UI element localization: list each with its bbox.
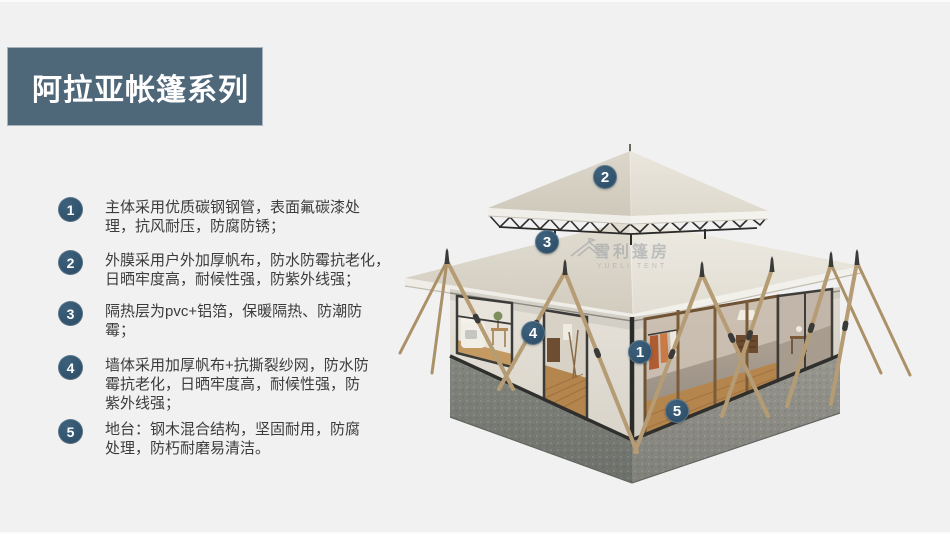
- feature-text: 外膜采用户外加厚帆布，防水防霉抗老化， 日晒牢度高，耐候性强，防紫外线强；: [105, 251, 395, 289]
- tent-illustration: 雪利篷房 YUELI TENT 1 2 3 4 5: [395, 140, 950, 534]
- feature-item-2: 2 外膜采用户外加厚帆布，防水防霉抗老化， 日晒牢度高，耐候性强，防紫外线强；: [58, 250, 395, 289]
- tent-marker-3: 3: [535, 230, 559, 254]
- feature-text: 墙体采用加厚帆布+抗撕裂纱网，防水防 霉抗老化，日晒牢度高，耐候性强，防 紫外线…: [105, 356, 395, 413]
- feature-item-5: 5 地台：钢木混合结构，坚固耐用，防腐 处理，防朽耐磨易清洁。: [58, 419, 395, 458]
- tent-render: [395, 140, 950, 534]
- feature-item-1: 1 主体采用优质碳钢钢管，表面氟碳漆处 理，抗风耐压，防腐防锈；: [58, 197, 395, 236]
- feature-number-badge: 2: [58, 250, 83, 275]
- watermark-tent-icon: [567, 238, 611, 258]
- tent-marker-5: 5: [665, 399, 689, 423]
- slide-top-edge: [0, 0, 950, 2]
- page-title: 阿拉亚帐篷系列: [8, 65, 249, 109]
- feature-text: 地台：钢木混合结构，坚固耐用，防腐 处理，防朽耐磨易清洁。: [105, 420, 395, 458]
- feature-text: 主体采用优质碳钢钢管，表面氟碳漆处 理，抗风耐压，防腐防锈；: [105, 198, 395, 236]
- tent-marker-2: 2: [593, 165, 617, 189]
- slide: 阿拉亚帐篷系列 1 主体采用优质碳钢钢管，表面氟碳漆处 理，抗风耐压，防腐防锈；…: [0, 0, 950, 534]
- tent-marker-4: 4: [521, 321, 545, 345]
- feature-text: 隔热层为pvc+铝箔，保暖隔热、防潮防 霉；: [105, 302, 395, 340]
- tent-marker-1: 1: [628, 340, 652, 364]
- feature-number-badge: 5: [58, 419, 83, 444]
- title-banner: 阿拉亚帐篷系列: [7, 47, 263, 126]
- feature-number-badge: 4: [58, 355, 83, 380]
- watermark-en-text: YUELI TENT: [567, 263, 697, 270]
- feature-item-4: 4 墙体采用加厚帆布+抗撕裂纱网，防水防 霉抗老化，日晒牢度高，耐候性强，防 紫…: [58, 355, 395, 413]
- feature-number-badge: 3: [58, 301, 83, 326]
- roof-top-tier: [488, 144, 768, 224]
- brand-watermark: 雪利篷房 YUELI TENT: [567, 238, 697, 270]
- feature-number-badge: 1: [58, 197, 83, 222]
- feature-item-3: 3 隔热层为pvc+铝箔，保暖隔热、防潮防 霉；: [58, 301, 395, 340]
